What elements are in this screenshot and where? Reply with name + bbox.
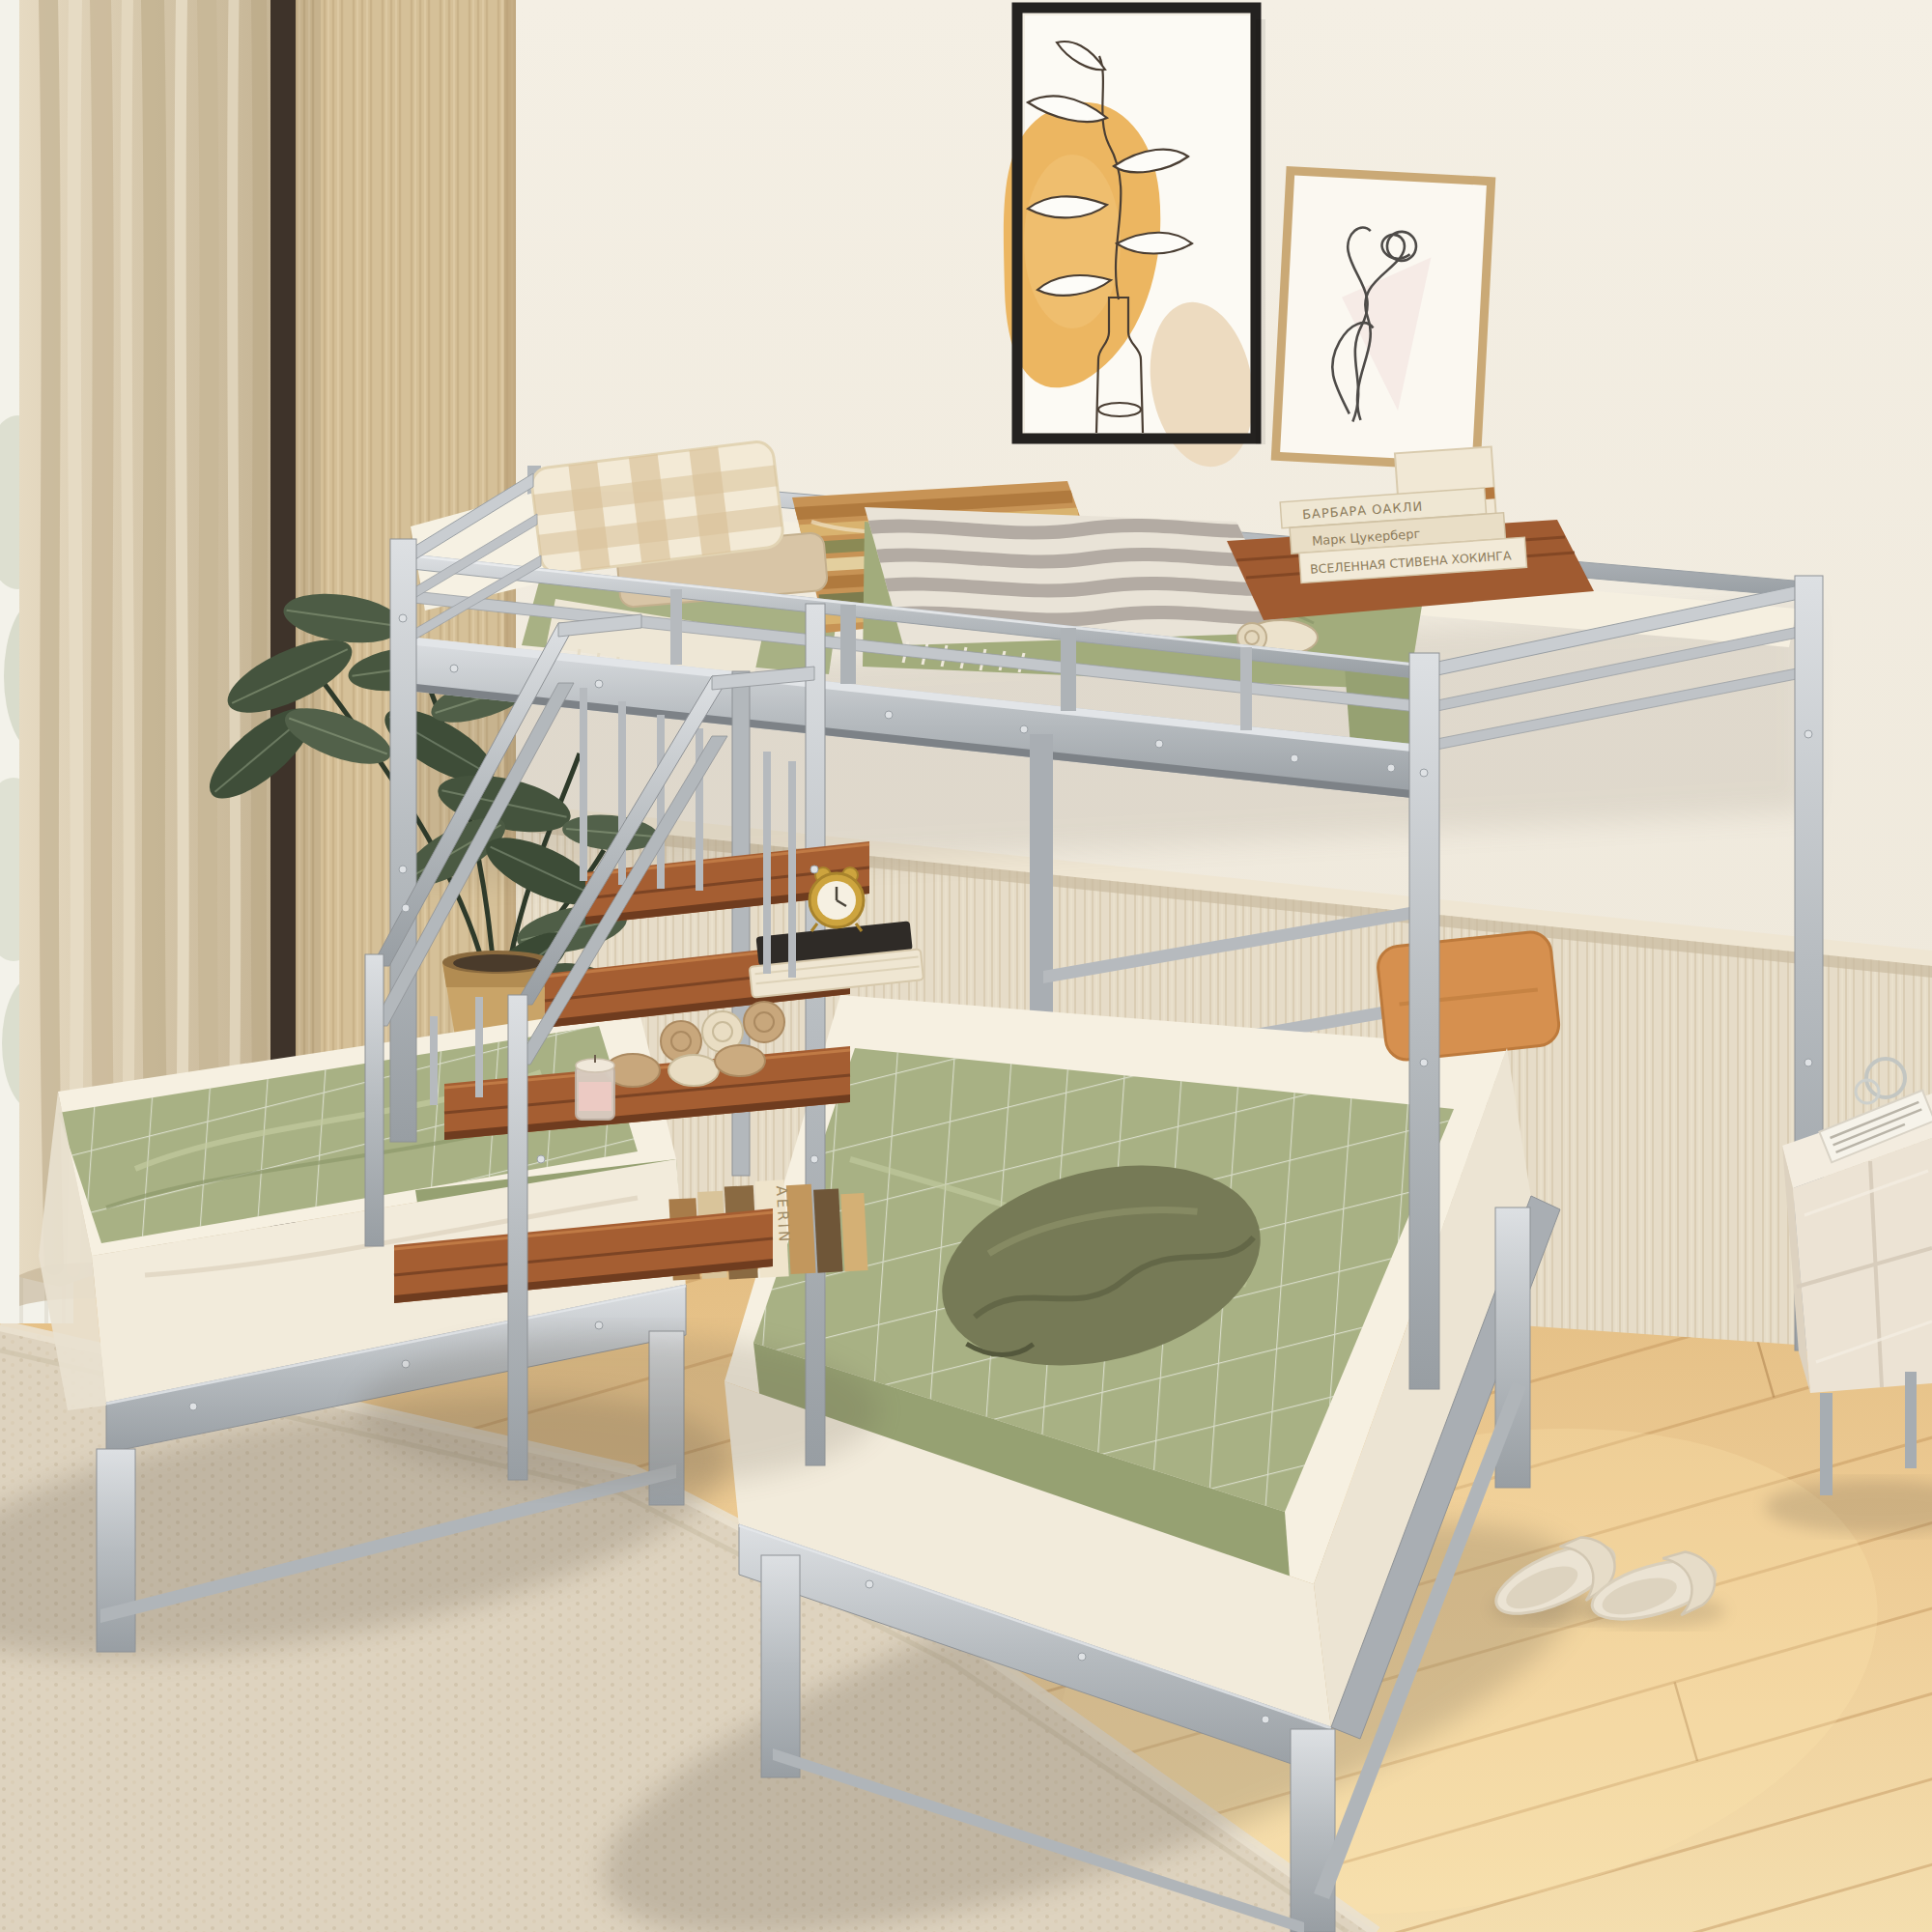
scene-canvas: БАРБАРА ОАКЛИ Марк Цукерберг ВСЕЛЕННАЯ С… <box>0 0 1932 1932</box>
orange-pillow <box>1376 930 1560 1062</box>
artwork-left <box>1004 8 1265 475</box>
artwork-right <box>1275 171 1491 467</box>
stair-rear-post <box>806 604 825 1465</box>
nightstand-leg <box>1820 1393 1833 1495</box>
stair-candle <box>576 1055 614 1120</box>
bedroom-scene: БАРБАРА ОАКЛИ Марк Цукерберг ВСЕЛЕННАЯ С… <box>0 0 1932 1932</box>
stair-book-spine-label: AERIN <box>773 1185 793 1245</box>
nightstand-leg-2 <box>1905 1372 1917 1468</box>
